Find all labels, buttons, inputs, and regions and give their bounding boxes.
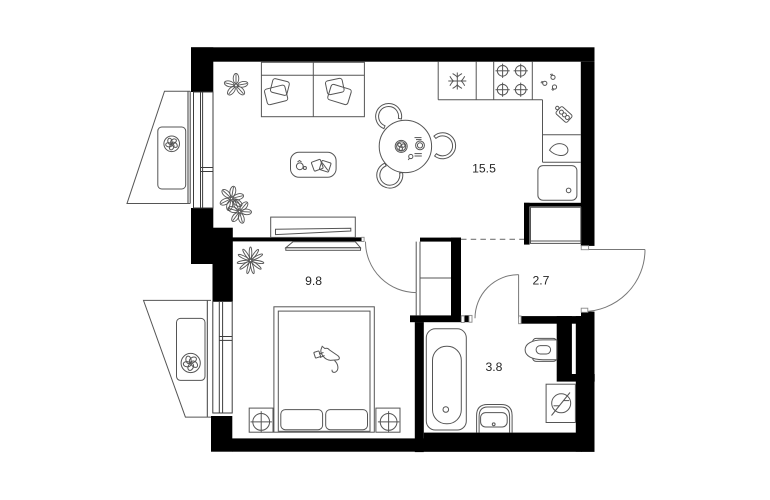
svg-text:3.8: 3.8: [486, 360, 503, 374]
svg-text:9.8: 9.8: [305, 274, 322, 288]
svg-text:15.5: 15.5: [472, 161, 496, 175]
svg-text:2.7: 2.7: [533, 273, 550, 287]
